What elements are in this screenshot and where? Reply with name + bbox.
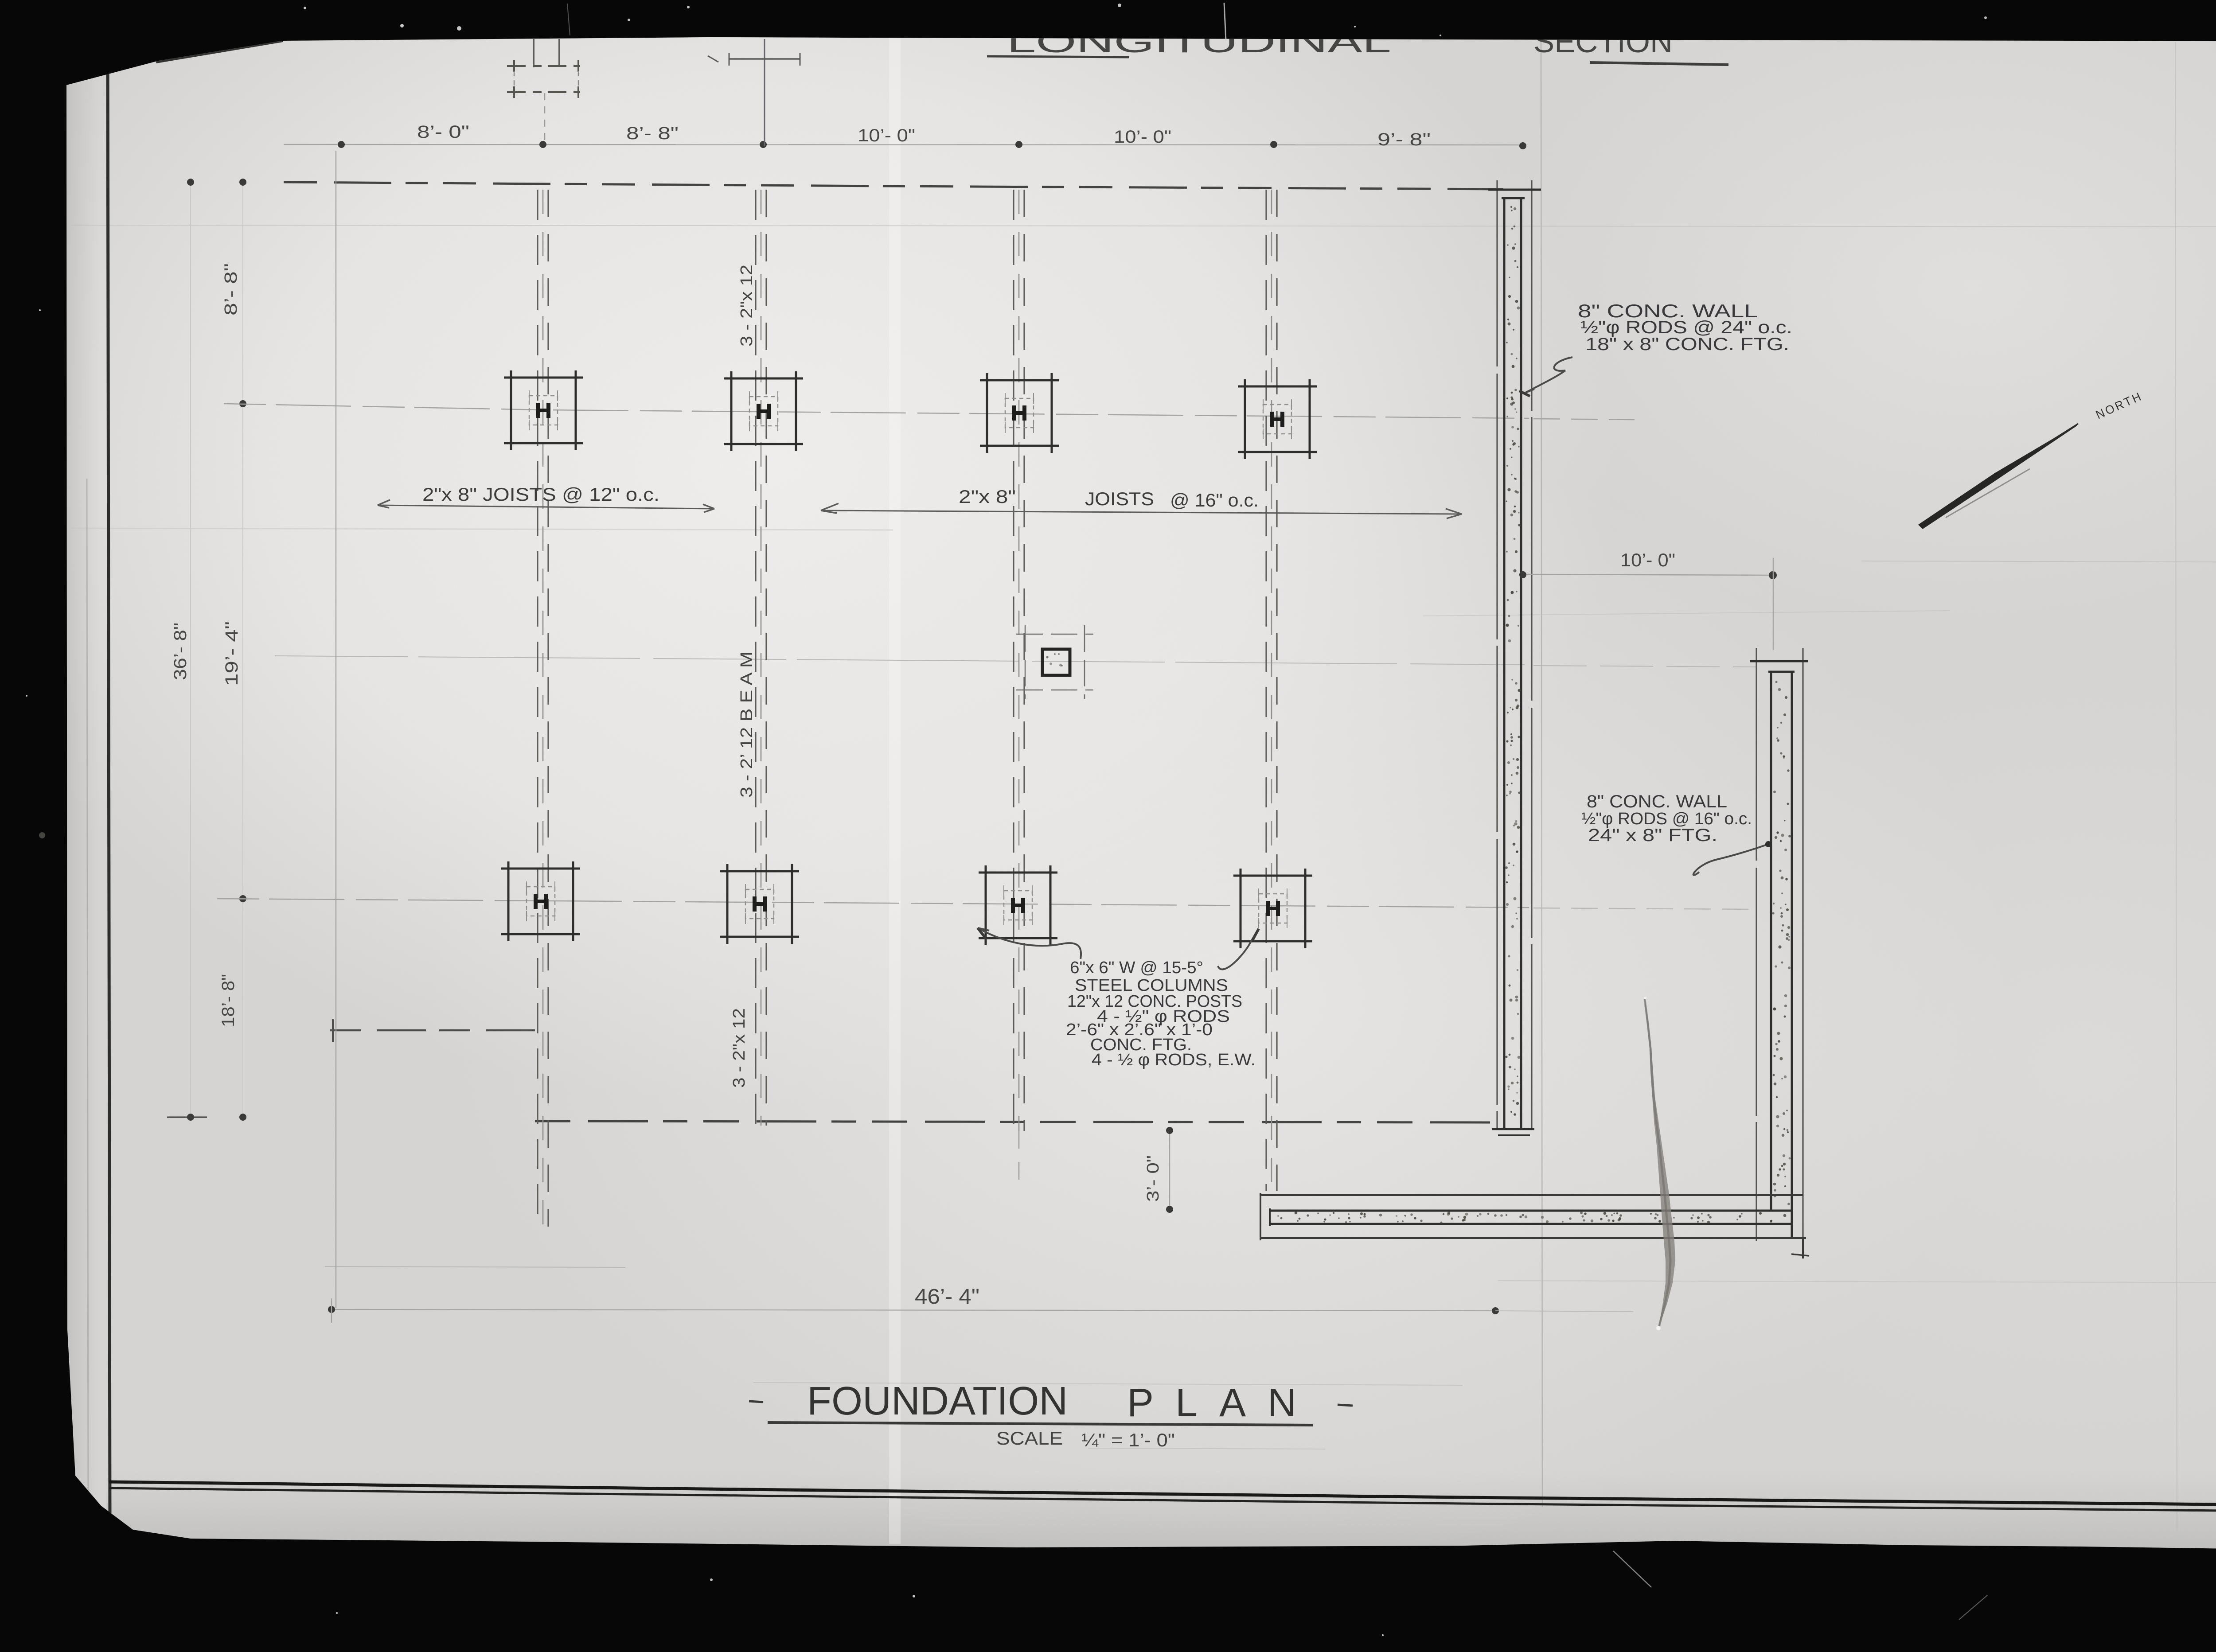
svg-text:8’- 8": 8’- 8" <box>626 124 679 143</box>
svg-text:JOISTS: JOISTS <box>1085 488 1154 509</box>
svg-text:FOUNDATION: FOUNDATION <box>807 1379 1068 1423</box>
svg-text:8" CONC. WALL: 8" CONC. WALL <box>1587 792 1727 811</box>
svg-text:3 - 2"x 12: 3 - 2"x 12 <box>737 265 756 347</box>
svg-text:SCALE: SCALE <box>996 1428 1063 1449</box>
svg-text:36’- 8": 36’- 8" <box>171 623 190 680</box>
svg-text:¼" = 1’- 0": ¼" = 1’- 0" <box>1081 1430 1175 1450</box>
svg-text:2"x 8" JOISTS @ 12" o.c.: 2"x 8" JOISTS @ 12" o.c. <box>422 484 659 505</box>
svg-text:10’- 0": 10’- 0" <box>1114 127 1171 147</box>
svg-text:@ 16" o.c.: @ 16" o.c. <box>1170 490 1259 510</box>
svg-text:3 - 2’ 12 B E A M: 3 - 2’ 12 B E A M <box>737 651 756 798</box>
svg-text:8’- 0": 8’- 0" <box>417 122 469 142</box>
svg-text:3 - 2"x 12: 3 - 2"x 12 <box>730 1008 749 1088</box>
svg-text:10’- 0": 10’- 0" <box>1620 549 1675 570</box>
svg-text:10’- 0": 10’- 0" <box>858 126 915 145</box>
svg-text:4 - ½ φ RODS, E.W.: 4 - ½ φ RODS, E.W. <box>1092 1051 1256 1069</box>
svg-text:24" x 8" FTG.: 24" x 8" FTG. <box>1588 826 1717 845</box>
svg-text:19’- 4": 19’- 4" <box>222 621 242 686</box>
svg-text:3’- 0": 3’- 0" <box>1144 1155 1163 1202</box>
svg-text:8’- 8": 8’- 8" <box>221 263 241 316</box>
svg-text:18’- 8": 18’- 8" <box>218 974 238 1027</box>
svg-text:46’- 4": 46’- 4" <box>915 1285 979 1309</box>
svg-text:9’- 8": 9’- 8" <box>1377 130 1431 149</box>
svg-text:PLAN: PLAN <box>1127 1381 1318 1425</box>
svg-text:6"x 6" W @ 15-5°: 6"x 6" W @ 15-5° <box>1070 958 1203 977</box>
svg-text:18" x 8" CONC. FTG.: 18" x 8" CONC. FTG. <box>1585 335 1789 354</box>
svg-text:2"x 8": 2"x 8" <box>959 486 1016 507</box>
